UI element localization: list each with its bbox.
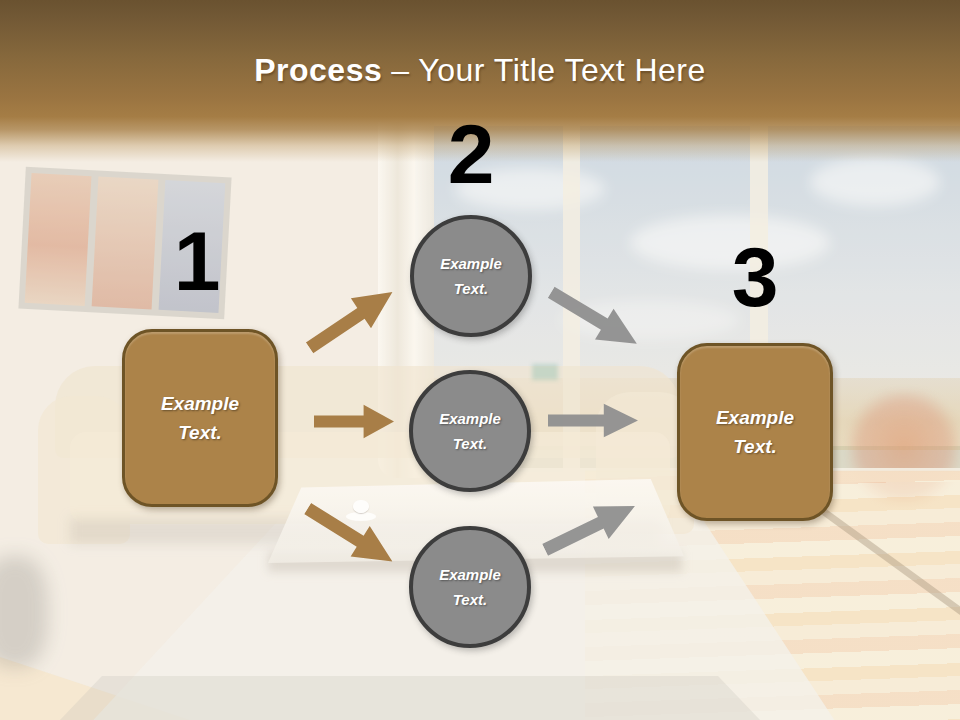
circle-middle-label: Example Text. bbox=[428, 406, 512, 457]
shadow-blob bbox=[0, 556, 48, 668]
arrow-box1-to-bottom-circle-icon bbox=[297, 492, 403, 579]
step-2-circle-middle[interactable]: Example Text. bbox=[409, 370, 531, 492]
rug-edge-shadow bbox=[60, 676, 760, 720]
wall-art-panel bbox=[25, 173, 92, 306]
circle-top-label: Example Text. bbox=[429, 251, 513, 302]
step-2-circle-bottom[interactable]: Example Text. bbox=[409, 526, 531, 648]
arrow-bottom-circle-to-box3-icon bbox=[536, 488, 643, 568]
floor-edge-line bbox=[818, 506, 960, 636]
arrow-box1-to-middle-circle-icon bbox=[314, 403, 394, 440]
cloud bbox=[810, 158, 940, 206]
step-1-box-label: Example Text. bbox=[148, 389, 252, 448]
step-3-box-label: Example Text. bbox=[703, 403, 807, 462]
step-number-2[interactable]: 2 bbox=[426, 112, 516, 196]
arrow-box1-to-top-circle-icon bbox=[298, 275, 403, 364]
arrow-top-circle-to-box3-icon bbox=[541, 275, 647, 361]
wall-art-panel bbox=[92, 177, 159, 310]
decor-accent bbox=[532, 364, 558, 380]
wood-floor-corner bbox=[0, 636, 190, 720]
circle-bottom-label: Example Text. bbox=[428, 562, 512, 613]
step-3-box[interactable]: Example Text. bbox=[677, 343, 833, 521]
window-flowers bbox=[848, 390, 960, 505]
step-number-1[interactable]: 1 bbox=[152, 219, 242, 303]
title-keyword: Process bbox=[254, 52, 382, 88]
step-1-box[interactable]: Example Text. bbox=[122, 329, 278, 507]
page-title[interactable]: Process– Your Title Text Here bbox=[0, 52, 960, 89]
slide-canvas: Process– Your Title Text Here 1 2 3 Exam… bbox=[0, 0, 960, 720]
sofa-armrest bbox=[38, 396, 130, 544]
step-number-3[interactable]: 3 bbox=[710, 235, 800, 319]
arrow-middle-circle-to-box3-icon bbox=[548, 402, 638, 439]
coffee-cup bbox=[353, 500, 369, 513]
step-2-circle-top[interactable]: Example Text. bbox=[410, 215, 532, 337]
title-text: – Your Title Text Here bbox=[391, 52, 706, 88]
